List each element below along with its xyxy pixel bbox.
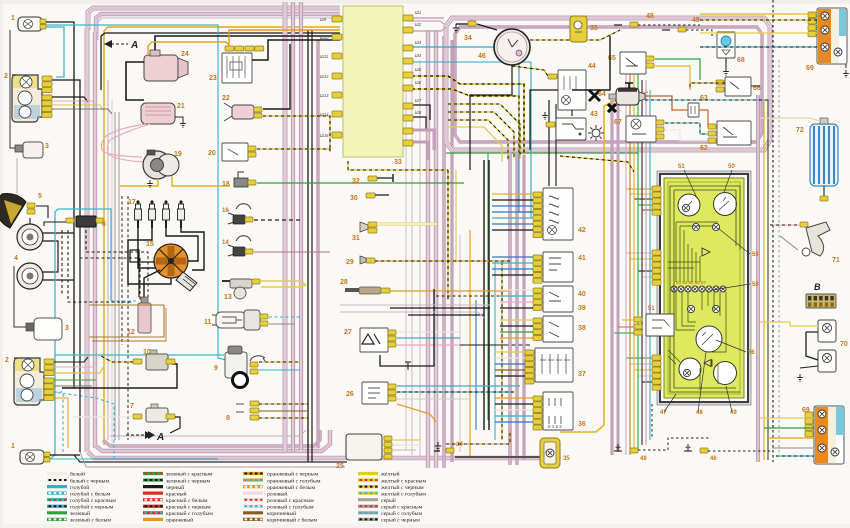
svg-text:25: 25 [336, 463, 344, 470]
svg-text:30: 30 [350, 195, 358, 202]
svg-text:64: 64 [598, 91, 606, 98]
svg-text:69: 69 [806, 65, 814, 72]
svg-text:Ш1: Ш1 [415, 10, 421, 15]
svg-text:37: 37 [578, 371, 586, 378]
svg-text:34: 34 [464, 35, 472, 42]
svg-text:A: A [130, 40, 138, 51]
svg-text:черный: черный [166, 484, 184, 491]
svg-text:72: 72 [796, 127, 804, 134]
svg-text:27: 27 [344, 329, 352, 336]
svg-text:серый: серый [381, 497, 396, 504]
svg-text:31: 31 [352, 235, 360, 242]
svg-text:48: 48 [646, 13, 654, 20]
svg-text:68: 68 [737, 57, 745, 64]
svg-text:32: 32 [352, 178, 360, 185]
svg-text:оранжевый с белым: оранжевый с белым [267, 484, 316, 491]
svg-text:4: 4 [14, 255, 18, 262]
svg-text:15: 15 [146, 241, 154, 248]
svg-text:45: 45 [692, 17, 700, 24]
svg-text:0 1 2 3: 0 1 2 3 [548, 424, 562, 429]
svg-text:51: 51 [648, 306, 655, 312]
svg-text:34: 34 [456, 442, 463, 448]
svg-text:розовый с голубым: розовый с голубым [267, 503, 314, 510]
svg-text:Ш12: Ш12 [320, 74, 329, 79]
svg-text:44: 44 [588, 63, 596, 70]
svg-text:розовый с красным: розовый с красным [267, 497, 314, 504]
svg-text:Ш4: Ш4 [415, 53, 422, 58]
svg-text:1: 1 [11, 15, 15, 22]
svg-text:желтый с красным: желтый с красным [380, 477, 426, 484]
svg-text:46: 46 [478, 53, 486, 60]
svg-text:Ш14: Ш14 [320, 112, 329, 117]
svg-text:39: 39 [578, 305, 586, 312]
svg-text:10: 10 [143, 349, 151, 356]
svg-text:47: 47 [660, 410, 667, 416]
svg-text:Ш10: Ш10 [320, 35, 329, 40]
svg-text:12: 12 [127, 329, 135, 336]
svg-text:красный с черным: красный с черным [166, 503, 211, 510]
svg-text:59: 59 [752, 252, 759, 258]
svg-text:8: 8 [226, 415, 230, 422]
svg-text:49: 49 [730, 410, 737, 416]
svg-text:65: 65 [608, 55, 616, 62]
svg-text:Ш9: Ш9 [320, 17, 327, 22]
svg-text:62: 62 [700, 145, 708, 152]
svg-text:Ш13: Ш13 [320, 93, 329, 98]
svg-text:63: 63 [700, 95, 708, 102]
svg-text:7: 7 [130, 403, 134, 410]
svg-text:33: 33 [394, 159, 402, 166]
svg-text:3: 3 [65, 325, 69, 332]
svg-text:коричневый с белым: коричневый с белым [267, 517, 318, 524]
svg-text:14: 14 [222, 240, 229, 246]
svg-text:серый с черным: серый с черным [381, 517, 420, 524]
svg-text:46: 46 [710, 456, 717, 462]
svg-text:A: A [156, 432, 164, 443]
svg-text:23: 23 [209, 75, 217, 82]
svg-text:голубой с красным: голубой с красным [70, 497, 116, 504]
svg-text:35: 35 [590, 25, 598, 32]
svg-text:Ш5: Ш5 [415, 67, 422, 72]
svg-text:53 54 55 56 57: 53 54 55 56 57 [676, 280, 707, 285]
svg-text:оранжевый с черным: оранжевый с черным [267, 471, 319, 478]
svg-text:43: 43 [590, 111, 598, 118]
svg-text:белый: белый [70, 471, 85, 478]
svg-text:зеленый: зеленый [70, 510, 90, 517]
svg-text:Ш3: Ш3 [415, 40, 422, 45]
svg-text:5: 5 [38, 193, 42, 200]
svg-text:1: 1 [11, 443, 15, 450]
svg-text:71: 71 [832, 257, 840, 264]
svg-text:зеленый с красным: зеленый с красным [166, 471, 213, 478]
svg-text:38: 38 [578, 325, 586, 332]
svg-text:серый с красным: серый с красным [381, 503, 423, 510]
svg-text:голубой: голубой [70, 484, 89, 491]
svg-text:16: 16 [222, 208, 229, 214]
svg-text:красный с белым: красный с белым [166, 497, 208, 504]
svg-text:Ш2: Ш2 [415, 22, 422, 27]
svg-text:красный с голубым: красный с голубым [166, 510, 213, 517]
svg-text:желтый с голубым: желтый с голубым [380, 490, 426, 497]
svg-text:Ш11: Ш11 [320, 54, 328, 59]
svg-text:желтый с черным: желтый с черным [380, 484, 424, 491]
svg-text:Ш6: Ш6 [415, 80, 422, 85]
svg-text:3: 3 [45, 143, 49, 150]
svg-text:голубой с белым: голубой с белым [70, 490, 111, 497]
svg-text:35: 35 [563, 456, 570, 462]
svg-text:28: 28 [340, 279, 348, 286]
svg-text:9: 9 [214, 365, 218, 372]
svg-text:красный: красный [166, 490, 187, 497]
svg-text:22: 22 [222, 95, 230, 102]
svg-text:24: 24 [181, 51, 189, 58]
svg-text:17: 17 [128, 199, 136, 206]
svg-text:70: 70 [840, 341, 848, 348]
svg-text:48: 48 [696, 410, 703, 416]
svg-text:67: 67 [614, 119, 622, 126]
svg-text:B: B [814, 282, 821, 292]
svg-text:40: 40 [578, 291, 586, 298]
svg-text:18: 18 [222, 181, 230, 188]
svg-text:36: 36 [578, 421, 586, 428]
svg-text:Ш8: Ш8 [415, 110, 422, 115]
svg-text:розовый: розовый [267, 490, 287, 497]
svg-text:20: 20 [208, 150, 216, 157]
svg-text:26: 26 [346, 391, 354, 398]
svg-text:13: 13 [224, 294, 232, 301]
svg-text:6: 6 [102, 221, 106, 228]
svg-text:21: 21 [177, 103, 185, 110]
svg-text:голубой с черным: голубой с черным [70, 503, 114, 510]
svg-text:56: 56 [748, 350, 755, 356]
svg-text:оранжевый: оранжевый [166, 517, 193, 524]
svg-text:желтый: желтый [380, 471, 400, 478]
svg-text:19: 19 [174, 151, 182, 158]
svg-text:Ш15: Ш15 [320, 133, 329, 138]
svg-text:48: 48 [640, 456, 647, 462]
svg-text:2: 2 [5, 357, 9, 364]
svg-text:42: 42 [578, 227, 586, 234]
svg-text:11: 11 [204, 319, 212, 326]
svg-text:41: 41 [578, 255, 586, 262]
svg-text:50: 50 [728, 164, 735, 170]
svg-text:серый с голубым: серый с голубым [381, 510, 422, 517]
svg-text:белый с черным: белый с черным [70, 477, 110, 484]
svg-text:29: 29 [346, 259, 354, 266]
svg-text:51: 51 [678, 164, 685, 170]
svg-text:оранжевый с голубым: оранжевый с голубым [267, 477, 321, 484]
svg-text:Ш7: Ш7 [415, 98, 422, 103]
svg-text:58: 58 [752, 282, 759, 288]
svg-text:коричневый: коричневый [267, 510, 296, 517]
svg-text:2: 2 [4, 73, 8, 80]
svg-text:зеленый с белым: зеленый с белым [70, 517, 111, 524]
svg-text:зеленый с черным: зеленый с черным [166, 477, 211, 484]
